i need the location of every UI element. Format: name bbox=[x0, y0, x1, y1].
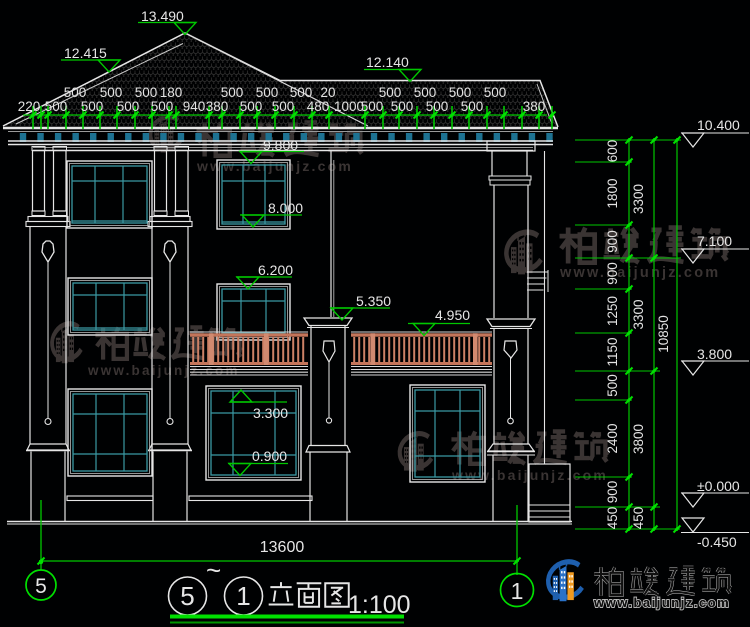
svg-text:500: 500 bbox=[240, 99, 263, 114]
svg-text:500: 500 bbox=[461, 99, 484, 114]
svg-text:500: 500 bbox=[605, 374, 620, 397]
svg-text:450: 450 bbox=[631, 507, 646, 530]
svg-text:500: 500 bbox=[135, 85, 158, 100]
svg-text:www.baijunjz.com: www.baijunjz.com bbox=[559, 265, 720, 281]
svg-text:500: 500 bbox=[64, 85, 87, 100]
svg-text:10.400: 10.400 bbox=[697, 117, 740, 133]
svg-text:6.200: 6.200 bbox=[258, 262, 293, 278]
svg-text:3300: 3300 bbox=[631, 299, 646, 329]
svg-text:500: 500 bbox=[272, 99, 295, 114]
svg-text:500: 500 bbox=[256, 85, 279, 100]
svg-text:4.950: 4.950 bbox=[435, 307, 470, 323]
svg-text:1000: 1000 bbox=[334, 99, 364, 114]
svg-text:1150: 1150 bbox=[605, 337, 620, 366]
svg-text:3.300: 3.300 bbox=[253, 405, 288, 421]
svg-text:1: 1 bbox=[236, 581, 250, 611]
svg-text:500: 500 bbox=[484, 85, 507, 100]
svg-text:www.baijunjz.com: www.baijunjz.com bbox=[87, 363, 240, 378]
svg-text:940: 940 bbox=[183, 99, 206, 114]
svg-text:9.800: 9.800 bbox=[263, 137, 298, 153]
svg-text:450: 450 bbox=[605, 507, 620, 530]
svg-text:1800: 1800 bbox=[605, 178, 620, 208]
svg-text:500: 500 bbox=[117, 99, 140, 114]
svg-text:3800: 3800 bbox=[631, 424, 646, 454]
svg-text:12.140: 12.140 bbox=[366, 54, 409, 70]
svg-text:500: 500 bbox=[45, 99, 68, 114]
svg-text:www.baijunjz.com: www.baijunjz.com bbox=[593, 595, 730, 610]
svg-text:3.800: 3.800 bbox=[697, 346, 732, 362]
svg-text:5: 5 bbox=[35, 575, 47, 598]
svg-text:±0.000: ±0.000 bbox=[697, 478, 740, 494]
svg-text:1: 1 bbox=[511, 578, 524, 604]
svg-text:500: 500 bbox=[100, 85, 123, 100]
svg-text:13.490: 13.490 bbox=[141, 8, 184, 24]
svg-text:5.350: 5.350 bbox=[356, 293, 391, 309]
svg-text:12.415: 12.415 bbox=[64, 45, 107, 61]
svg-text:~: ~ bbox=[206, 555, 221, 585]
svg-text:500: 500 bbox=[81, 99, 104, 114]
svg-text:900: 900 bbox=[605, 481, 620, 504]
svg-text:1250: 1250 bbox=[605, 296, 620, 326]
svg-text:500: 500 bbox=[391, 99, 414, 114]
svg-text:600: 600 bbox=[605, 140, 620, 163]
svg-text:500: 500 bbox=[426, 99, 449, 114]
svg-text:500: 500 bbox=[221, 85, 244, 100]
svg-text:180: 180 bbox=[160, 85, 183, 100]
svg-text:500: 500 bbox=[151, 99, 174, 114]
svg-text:500: 500 bbox=[290, 85, 313, 100]
svg-text:10850: 10850 bbox=[656, 315, 671, 353]
svg-text:2400: 2400 bbox=[605, 423, 620, 453]
svg-text:480: 480 bbox=[307, 99, 330, 114]
svg-text:5: 5 bbox=[180, 581, 194, 611]
svg-text:500: 500 bbox=[414, 85, 437, 100]
svg-text:500: 500 bbox=[361, 99, 384, 114]
svg-text:900: 900 bbox=[605, 230, 620, 253]
svg-text:0.900: 0.900 bbox=[252, 448, 287, 464]
svg-text:-0.450: -0.450 bbox=[697, 534, 737, 550]
svg-text:380: 380 bbox=[523, 99, 546, 114]
svg-text:7.100: 7.100 bbox=[697, 233, 732, 249]
svg-text:500: 500 bbox=[379, 85, 402, 100]
svg-text:3300: 3300 bbox=[631, 184, 646, 214]
svg-text:380: 380 bbox=[206, 99, 229, 114]
svg-text:13600: 13600 bbox=[260, 539, 305, 556]
svg-text:8.000: 8.000 bbox=[268, 200, 303, 216]
svg-text:20: 20 bbox=[320, 85, 335, 100]
svg-text:900: 900 bbox=[605, 262, 620, 285]
svg-text:500: 500 bbox=[449, 85, 472, 100]
svg-text:220: 220 bbox=[18, 99, 41, 114]
